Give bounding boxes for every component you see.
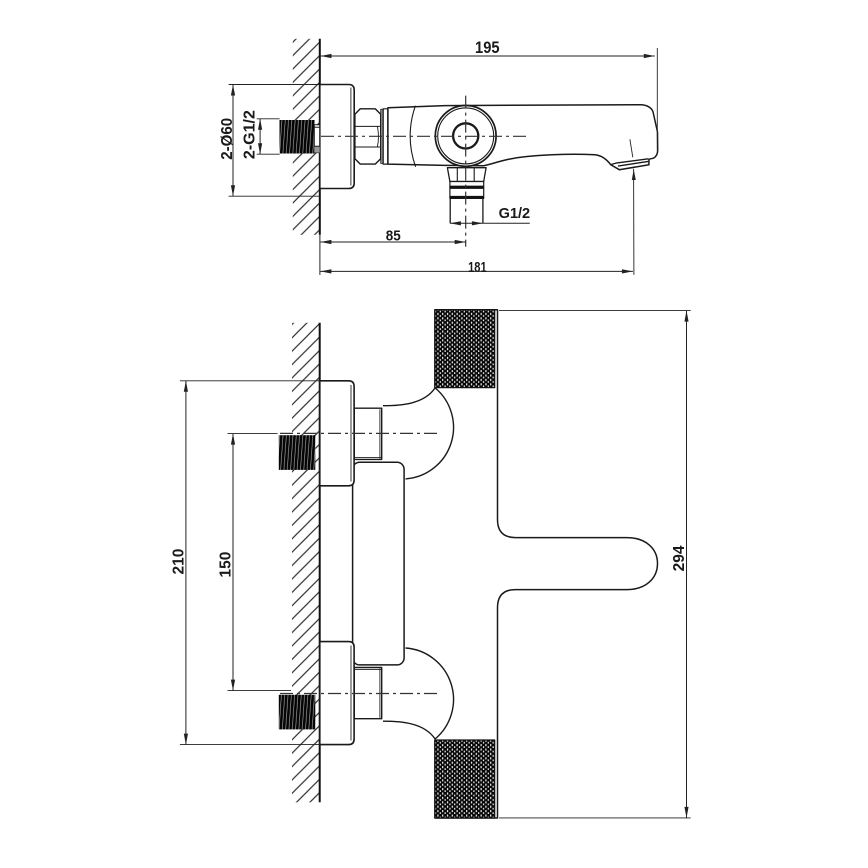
svg-text:2-G1/2: 2-G1/2 bbox=[242, 110, 259, 159]
svg-text:210: 210 bbox=[170, 549, 187, 575]
svg-text:2-Ø60: 2-Ø60 bbox=[219, 118, 236, 160]
svg-text:181: 181 bbox=[468, 260, 487, 276]
svg-text:G1/2: G1/2 bbox=[499, 205, 531, 222]
svg-text:294: 294 bbox=[671, 545, 688, 571]
svg-text:195: 195 bbox=[475, 38, 500, 57]
svg-text:150: 150 bbox=[218, 552, 235, 578]
svg-text:85: 85 bbox=[386, 228, 401, 244]
